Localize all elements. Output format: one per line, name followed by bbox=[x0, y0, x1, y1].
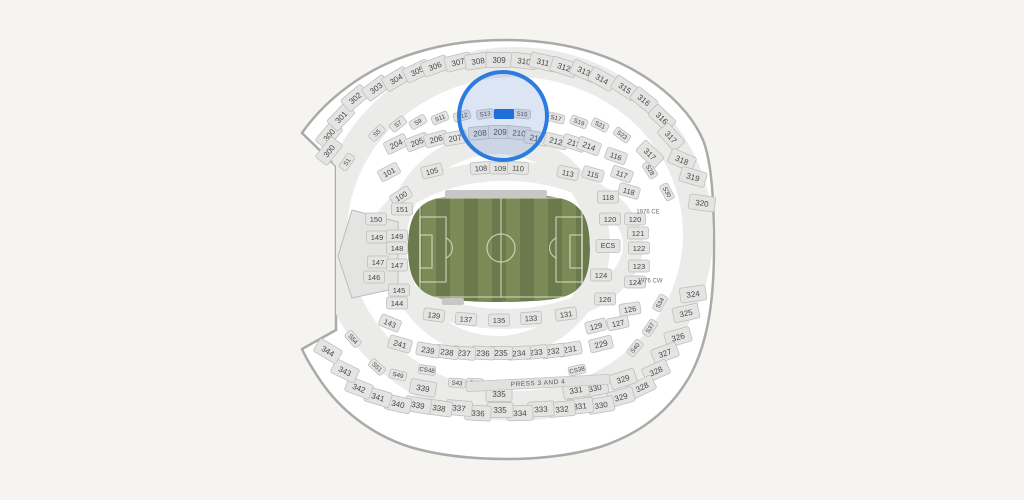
section-146[interactable]: 146 bbox=[364, 271, 385, 283]
section-108[interactable]: 108 bbox=[470, 161, 492, 174]
section-147[interactable]: 147 bbox=[368, 256, 389, 268]
section-144[interactable]: 144 bbox=[387, 297, 408, 309]
north-tunnel-bar bbox=[445, 190, 547, 198]
section-120[interactable]: 120 bbox=[625, 213, 646, 225]
section-149[interactable]: 149 bbox=[367, 231, 388, 243]
section-124[interactable]: 124 bbox=[625, 276, 646, 288]
section-ecs[interactable]: ECS bbox=[596, 240, 620, 253]
section-320[interactable]: 320 bbox=[688, 194, 716, 212]
section-324[interactable]: 324 bbox=[679, 285, 707, 303]
selected-suite[interactable] bbox=[494, 109, 514, 119]
south-tunnel-bar bbox=[442, 298, 464, 305]
section-151[interactable]: 151 bbox=[392, 203, 413, 215]
section-309[interactable]: 309 bbox=[486, 53, 512, 68]
section-s43[interactable]: S43 bbox=[448, 378, 466, 388]
section-133[interactable]: 133 bbox=[520, 311, 542, 324]
section-139[interactable]: 139 bbox=[423, 308, 445, 323]
section-126[interactable]: 126 bbox=[619, 302, 641, 317]
section-122[interactable]: 122 bbox=[629, 242, 650, 254]
seat-map-page: S1S5S7S9S11S12S13S15S17S19S21S23S28S30S3… bbox=[0, 0, 1024, 500]
section-126[interactable]: 126 bbox=[595, 293, 616, 305]
section-137[interactable]: 137 bbox=[455, 312, 477, 325]
section-150[interactable]: 150 bbox=[366, 213, 387, 225]
section-149[interactable]: 149 bbox=[387, 230, 408, 242]
section-147[interactable]: 147 bbox=[387, 259, 408, 271]
section-118[interactable]: 118 bbox=[598, 191, 619, 203]
section-110[interactable]: 110 bbox=[507, 161, 529, 174]
section-148[interactable]: 148 bbox=[387, 242, 408, 254]
section-121[interactable]: 121 bbox=[628, 227, 649, 239]
section-131[interactable]: 131 bbox=[555, 307, 577, 322]
section-135[interactable]: 135 bbox=[489, 314, 510, 326]
section-145[interactable]: 145 bbox=[389, 284, 410, 296]
section-120[interactable]: 120 bbox=[600, 213, 621, 225]
section-cs48[interactable]: CS48 bbox=[418, 364, 436, 375]
stadium-seat-map: S1S5S7S9S11S12S13S15S17S19S21S23S28S30S3… bbox=[0, 0, 1024, 500]
soccer-field bbox=[408, 190, 590, 310]
section-124[interactable]: 124 bbox=[591, 269, 612, 281]
section-123[interactable]: 123 bbox=[629, 260, 650, 272]
